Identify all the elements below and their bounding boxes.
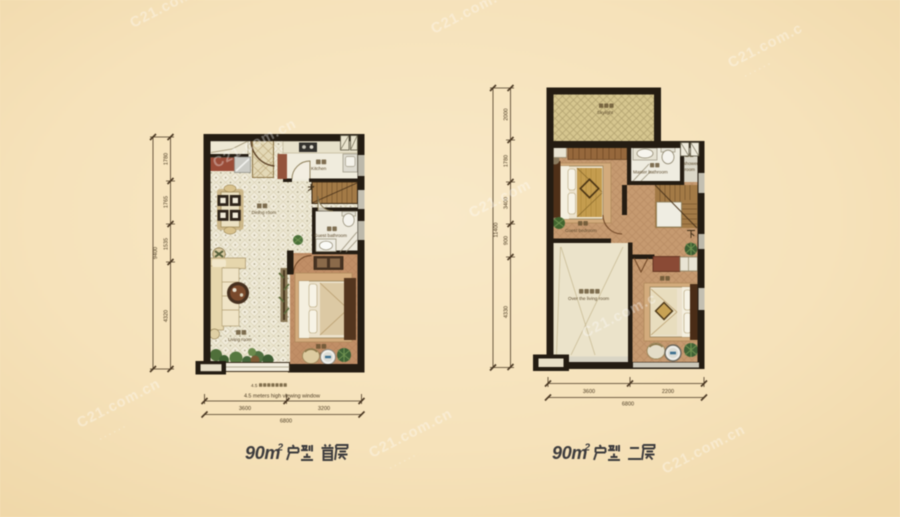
svg-text:4320: 4320 [164, 310, 170, 322]
svg-text:9400: 9400 [153, 247, 159, 259]
svg-text:3600: 3600 [583, 389, 595, 395]
svg-text:room: room [685, 167, 696, 172]
svg-text:Guest bedroom: Guest bedroom [565, 228, 597, 233]
svg-text:6800: 6800 [622, 402, 634, 408]
svg-text:2: 2 [277, 443, 284, 454]
svg-text:3600: 3600 [239, 406, 251, 412]
svg-text:Master bathroom: Master bathroom [633, 170, 668, 175]
svg-text:Living room: Living room [228, 337, 252, 342]
svg-text:2: 2 [584, 443, 591, 454]
svg-text:Guest bathroom: Guest bathroom [314, 233, 347, 238]
svg-text:900: 900 [504, 236, 510, 245]
svg-text:90m: 90m [245, 443, 280, 463]
svg-text:Over the living room: Over the living room [568, 296, 609, 301]
svg-text:Dining room: Dining room [252, 210, 277, 215]
svg-text:1765: 1765 [164, 196, 170, 208]
svg-text:2000: 2000 [504, 108, 510, 120]
svg-text:3200: 3200 [318, 406, 330, 412]
svg-text:6800: 6800 [280, 419, 292, 425]
svg-text:11400: 11400 [494, 223, 500, 238]
svg-text:Kitchen: Kitchen [311, 166, 327, 171]
svg-text:1780: 1780 [504, 155, 510, 167]
svg-text:shower: shower [684, 161, 699, 166]
svg-text:1780: 1780 [164, 153, 170, 165]
svg-text:2200: 2200 [662, 389, 674, 395]
svg-text:90m: 90m [552, 443, 587, 463]
svg-text:Skylight: Skylight [597, 110, 614, 115]
svg-text:4.5 meters high viewing window: 4.5 meters high viewing window [244, 394, 320, 400]
svg-text:4330: 4330 [504, 306, 510, 318]
svg-text:1535: 1535 [164, 238, 170, 250]
svg-text:4.5: 4.5 [251, 383, 258, 388]
